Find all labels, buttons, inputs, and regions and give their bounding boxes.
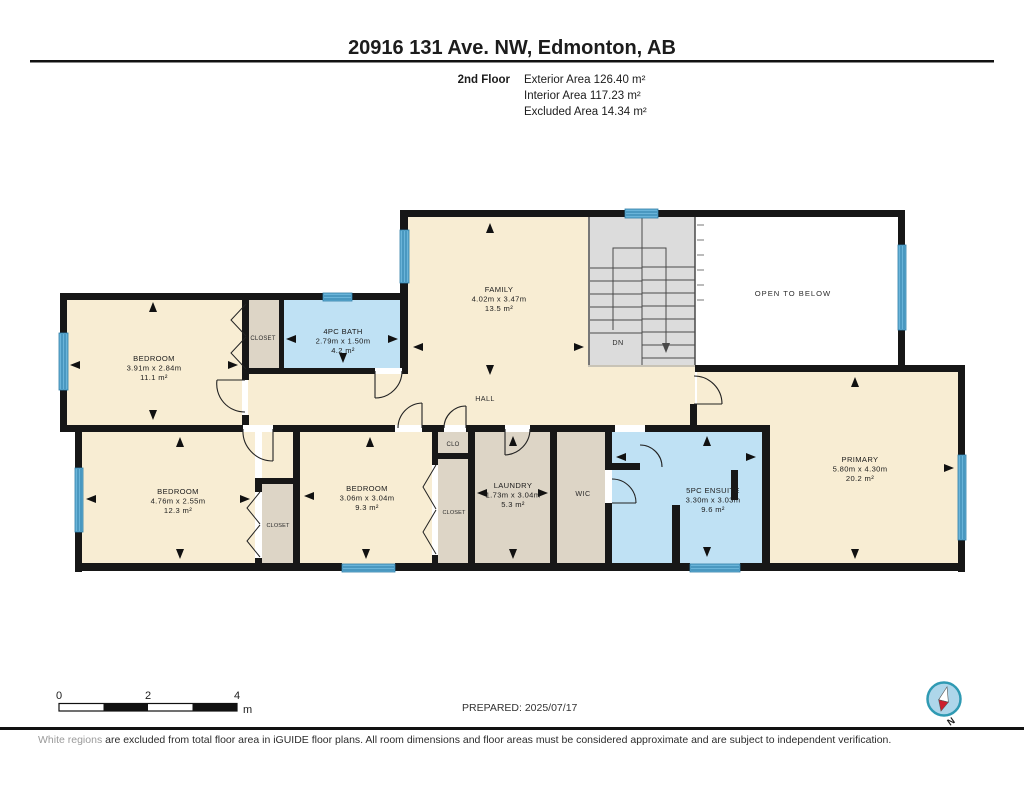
hall-label: HALL — [475, 394, 495, 403]
svg-text:4.76m x 2.55m: 4.76m x 2.55m — [151, 497, 206, 506]
svg-text:1.73m x 3.04m: 1.73m x 3.04m — [486, 491, 541, 500]
window — [958, 455, 966, 540]
window — [400, 230, 409, 283]
svg-text:LAUNDRY: LAUNDRY — [494, 481, 533, 490]
svg-text:11.1 m²: 11.1 m² — [140, 373, 168, 382]
closet-3-label: CLOSET — [443, 510, 466, 516]
svg-text:9.6 m²: 9.6 m² — [701, 505, 725, 514]
open-to-below-label: OPEN TO BELOW — [755, 289, 831, 298]
svg-text:4.02m x 3.47m: 4.02m x 3.47m — [472, 295, 527, 304]
bedroom-2-nook-floor — [262, 432, 293, 478]
scale-bar: 0 2 4 m — [56, 690, 252, 716]
svg-text:3.30m x 3.03m: 3.30m x 3.03m — [686, 496, 741, 505]
svg-text:9.3 m²: 9.3 m² — [355, 503, 379, 512]
header-divider — [30, 60, 994, 63]
window — [323, 293, 352, 301]
svg-text:BEDROOM: BEDROOM — [133, 354, 175, 363]
svg-text:5.80m x 4.30m: 5.80m x 4.30m — [833, 465, 888, 474]
svg-text:5PC ENSUITE: 5PC ENSUITE — [686, 486, 740, 495]
scale-tick-4: 4 — [234, 690, 240, 702]
svg-text:FAMILY: FAMILY — [485, 285, 514, 294]
wic-floor — [557, 432, 605, 565]
wic-label: WIC — [575, 489, 590, 498]
footer-disclaimer: White regions are excluded from total fl… — [38, 734, 891, 746]
hall-floor — [248, 374, 408, 425]
room-fills — [67, 217, 958, 565]
window — [898, 245, 906, 330]
window — [690, 564, 740, 572]
svg-text:BEDROOM: BEDROOM — [157, 487, 199, 496]
compass-north-label: N — [945, 715, 957, 728]
family-floor — [408, 217, 588, 425]
svg-text:3.06m x 3.04m: 3.06m x 3.04m — [340, 494, 395, 503]
closet-1-floor — [248, 300, 279, 368]
prepared-date: PREPARED: 2025/07/17 — [462, 702, 578, 714]
window — [625, 209, 658, 218]
scale-tick-0: 0 — [56, 690, 62, 702]
closet-2-label: CLOSET — [267, 523, 290, 529]
svg-text:4.2 m²: 4.2 m² — [331, 346, 355, 355]
svg-text:12.3 m²: 12.3 m² — [164, 506, 192, 515]
stat-exterior: Exterior Area 126.40 m² — [524, 74, 646, 86]
footer-divider — [0, 727, 1024, 730]
stairs-dn-label: DN — [612, 338, 623, 347]
scale-tick-2: 2 — [145, 690, 151, 702]
svg-text:4PC BATH: 4PC BATH — [323, 327, 362, 336]
window — [59, 333, 68, 390]
compass-icon: N — [928, 683, 961, 729]
clo-label: CLO — [447, 442, 460, 448]
svg-text:3.91m x 2.84m: 3.91m x 2.84m — [127, 364, 182, 373]
svg-text:BEDROOM: BEDROOM — [346, 484, 388, 493]
floor-stats: 2nd Floor Exterior Area 126.40 m² Interi… — [458, 74, 647, 118]
stat-excluded: Excluded Area 14.34 m² — [524, 106, 647, 118]
svg-text:5.3 m²: 5.3 m² — [501, 500, 525, 509]
stat-interior: Interior Area 117.23 m² — [524, 90, 641, 102]
svg-text:20.2 m²: 20.2 m² — [846, 474, 874, 483]
window — [75, 468, 83, 532]
svg-text:PRIMARY: PRIMARY — [842, 455, 879, 464]
closet-1-label: CLOSET — [250, 336, 275, 342]
page-title: 20916 131 Ave. NW, Edmonton, AB — [348, 37, 676, 59]
hall-understairs-floor — [588, 365, 695, 425]
scale-unit: m — [243, 704, 252, 716]
floor-label: 2nd Floor — [458, 74, 511, 86]
window — [342, 564, 395, 572]
svg-text:2.79m x 1.50m: 2.79m x 1.50m — [316, 337, 371, 346]
svg-text:13.5 m²: 13.5 m² — [485, 304, 513, 313]
floor-plan-page: 20916 131 Ave. NW, Edmonton, AB 2nd Floo… — [0, 0, 1024, 791]
